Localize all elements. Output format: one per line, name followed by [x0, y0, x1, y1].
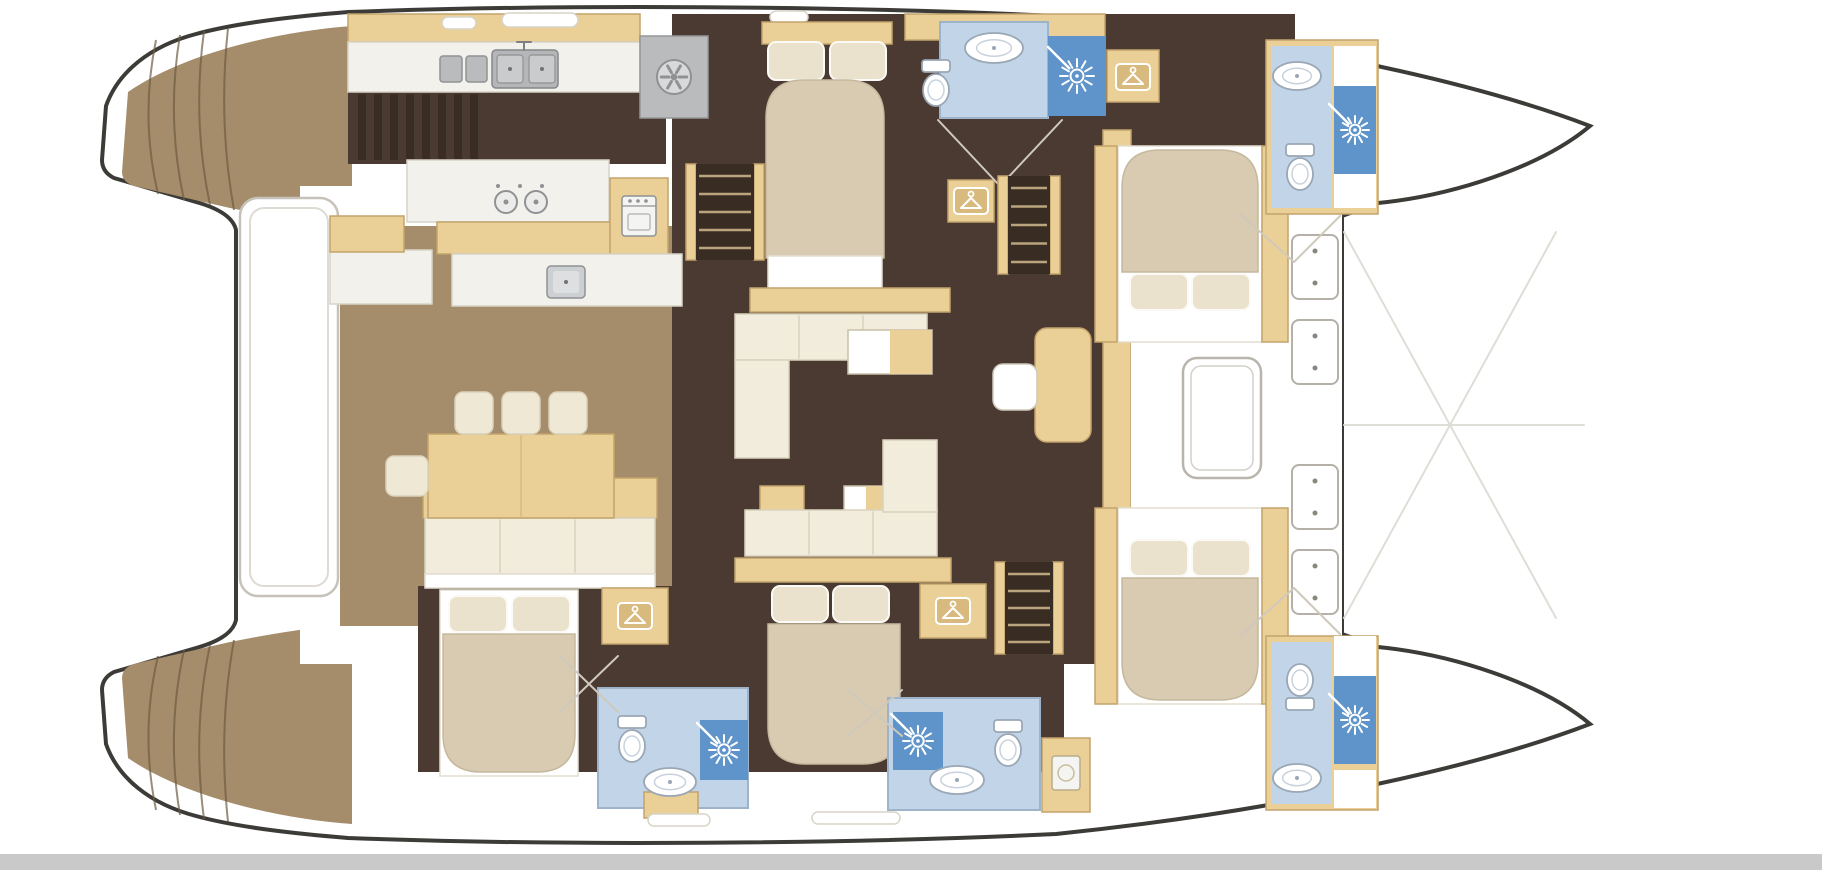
locker-dot	[1313, 479, 1318, 484]
aft-port-pillow	[512, 596, 570, 632]
oven-dot	[628, 199, 632, 203]
deck-locker	[1292, 320, 1338, 384]
wardrobe-hanger-icon	[618, 603, 652, 629]
sink-drain	[508, 67, 512, 71]
sun-dot	[1353, 718, 1357, 722]
deck-fitting	[502, 13, 578, 27]
deck-fitting	[770, 11, 808, 23]
stern-platform	[240, 198, 338, 596]
companionway-stairs	[686, 164, 764, 260]
sun-dot	[1075, 74, 1079, 78]
bed-shelf	[1095, 146, 1117, 342]
washbasin-icon	[1273, 764, 1321, 792]
galley-slat	[438, 94, 446, 160]
washbasin-icon	[930, 766, 984, 794]
cockpit-chair	[502, 392, 540, 434]
cockpit-chair	[386, 456, 428, 496]
stair-rail	[1053, 562, 1063, 654]
toilet-bowl	[1287, 664, 1313, 696]
sun-dot	[722, 748, 726, 752]
toilet-tank	[922, 60, 950, 72]
sink-drain	[992, 46, 996, 50]
galley-front	[437, 222, 613, 254]
island-counter	[330, 250, 432, 304]
stair-rail	[686, 164, 696, 260]
companionway-stairs	[998, 176, 1060, 274]
salon-sofa-bottom	[745, 510, 937, 556]
prep-sink-drain	[564, 280, 568, 284]
stair-rail	[754, 164, 764, 260]
salon-sofa-top-l	[735, 360, 789, 458]
galley-slat	[390, 94, 398, 160]
locker-dot	[1313, 281, 1318, 286]
locker-dot	[1313, 596, 1318, 601]
fwd-top-duvet	[1122, 150, 1258, 272]
stern-notch-bottom	[300, 620, 354, 664]
salon-side-table-half	[890, 330, 932, 374]
deck-locker	[1292, 465, 1338, 529]
toilet-bowl	[923, 74, 949, 106]
master-bed-foot	[768, 256, 882, 290]
fwd-bottom-pillow	[1192, 540, 1250, 576]
wardrobe-hanger-icon	[936, 598, 970, 624]
washbasin-icon	[1273, 62, 1321, 90]
deck-locker	[1292, 550, 1338, 614]
master-footboard	[750, 288, 950, 312]
sun-dot	[916, 739, 920, 743]
mid-cabin-duvet	[768, 624, 900, 764]
stair-rail	[995, 562, 1005, 654]
aft-port-pillow	[449, 596, 507, 632]
oven-dot	[644, 199, 648, 203]
toilet-tank	[1286, 698, 1314, 710]
companionway-stairs	[995, 562, 1063, 654]
bath-fwd-bottom-cap	[1334, 770, 1376, 808]
salon-sofa-bottom-l	[883, 440, 937, 512]
sink-drain	[668, 780, 672, 784]
washbasin-icon	[965, 33, 1023, 63]
stair-rail	[998, 176, 1008, 274]
toilet-tank	[618, 716, 646, 728]
sink-drain	[1295, 776, 1299, 780]
fwd-bottom-duvet	[1122, 578, 1258, 700]
wardrobe-hanger-icon	[954, 188, 988, 214]
galley-slat	[422, 94, 430, 160]
foredeck-hatch	[1183, 358, 1261, 478]
toilet-icon	[994, 720, 1022, 766]
bed-shelf	[1095, 508, 1117, 704]
nav-seat	[993, 364, 1037, 410]
locker-dot	[1313, 334, 1318, 339]
sink-drain	[1295, 74, 1299, 78]
galley-slat	[374, 94, 382, 160]
deck-fitting	[812, 812, 900, 824]
toilet-tank	[1286, 144, 1314, 156]
burner-center	[534, 200, 539, 205]
bottom-bar	[0, 854, 1822, 870]
master-headboard	[762, 22, 892, 44]
toilet-bowl	[619, 730, 645, 762]
stove-knob	[518, 184, 522, 188]
stove-burner-icon	[495, 191, 517, 213]
stove-knob	[540, 184, 544, 188]
locker-dot	[1313, 249, 1318, 254]
fan-hub	[671, 74, 678, 81]
nav-desk	[1035, 328, 1091, 442]
toilet-bowl	[995, 734, 1021, 766]
island-bar	[330, 216, 404, 252]
mid-cabin-pillow	[772, 586, 828, 622]
deck-plan-canvas	[0, 0, 1822, 870]
stove-knob	[496, 184, 500, 188]
stair-rail	[1050, 176, 1060, 274]
master-bed-duvet	[766, 80, 884, 258]
fwd-top-pillow	[1130, 274, 1188, 310]
galley-appliance	[466, 56, 487, 82]
toilet-icon	[922, 60, 950, 106]
fwd-bottom-pillow	[1130, 540, 1188, 576]
locker-dot	[1313, 366, 1318, 371]
locker-dot	[1313, 511, 1318, 516]
bath-fwd-top-cap	[1334, 174, 1376, 208]
sink-drain	[955, 778, 959, 782]
wardrobe-hanger-icon	[1116, 64, 1150, 90]
cabinet-appliance	[1052, 756, 1080, 790]
cockpit-chair	[549, 392, 587, 434]
galley-slat	[406, 94, 414, 160]
washbasin-icon	[644, 768, 696, 796]
galley-appliance	[440, 56, 462, 82]
toilet-icon	[618, 716, 646, 762]
toilet-bowl	[1287, 158, 1313, 190]
bath-fwd-top-cap	[1334, 46, 1376, 86]
locker-dot	[1313, 564, 1318, 569]
sink-drain	[540, 67, 544, 71]
oven-dot	[636, 199, 640, 203]
mid-cabin-headboard	[735, 558, 951, 582]
sun-dot	[1353, 128, 1357, 132]
toilet-icon	[1286, 144, 1314, 190]
deck-locker	[1292, 235, 1338, 299]
galley-slat	[470, 94, 478, 160]
mid-cabin-pillow	[833, 586, 889, 622]
aft-port-bench-edge	[425, 574, 655, 588]
toilet-tank	[994, 720, 1022, 732]
galley-slat	[454, 94, 462, 160]
aft-port-bench	[425, 518, 655, 574]
fwd-top-pillow	[1192, 274, 1250, 310]
cockpit-chair	[455, 392, 493, 434]
galley-top-cabinet	[348, 14, 640, 42]
yacht-deck-plan	[0, 0, 1822, 870]
toilet-icon	[1286, 664, 1314, 710]
bath-fwd-bottom-cap	[1334, 636, 1376, 676]
stove-burner-icon	[525, 191, 547, 213]
master-pillow	[830, 42, 886, 80]
deck-fitting	[648, 814, 710, 826]
deck-fitting	[442, 17, 476, 29]
fridge-fan-icon	[657, 60, 691, 94]
master-pillow	[768, 42, 824, 80]
galley-slat	[358, 94, 366, 160]
burner-center	[504, 200, 509, 205]
aft-port-duvet	[443, 634, 575, 772]
